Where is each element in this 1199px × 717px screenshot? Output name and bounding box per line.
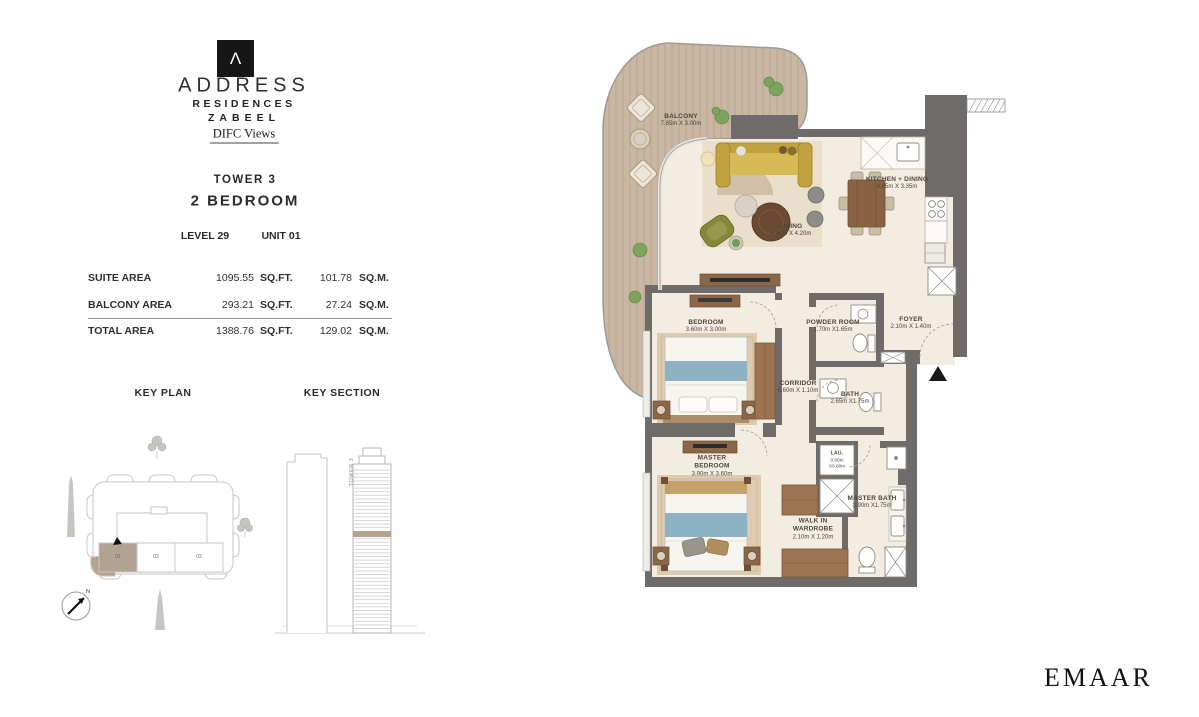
compass-icon xyxy=(62,592,90,620)
master-bed xyxy=(653,477,760,571)
brand-name: ADDRESS xyxy=(178,75,310,98)
floor-lamp xyxy=(701,152,715,166)
keyplan-unit02-label: 02 xyxy=(196,554,202,560)
brand-residences: RESIDENCES xyxy=(192,98,295,110)
side-table xyxy=(735,195,757,217)
area-sqft-value: 1095.55 xyxy=(204,272,254,284)
key-section-tower-label: TOWER 3 xyxy=(349,458,355,486)
area-sqm-value: 101.78 xyxy=(304,272,352,284)
table-row: TOTAL AREA 1388.76 SQ.FT. 129.02 SQ.M. xyxy=(88,325,392,338)
keyplan-unit01-label: 01 xyxy=(115,554,121,560)
key-plan-map xyxy=(55,425,275,635)
room-label-walk-in: WALK IN WARDROBE 2.10m X 1.20m xyxy=(790,518,836,543)
stove xyxy=(925,197,947,221)
plant-icon xyxy=(732,239,740,247)
keyplan-unit03-label: 03 xyxy=(153,554,159,560)
table-divider xyxy=(88,318,392,319)
room-label-master-bedroom: MASTER BEDROOM 3.90m X 3.60m xyxy=(689,455,735,480)
unit-type: 2 BEDROOM xyxy=(191,193,300,210)
area-row-label: SUITE AREA xyxy=(88,272,151,284)
developer-logo: EMAAR xyxy=(1044,663,1153,693)
balcony-table xyxy=(630,129,650,149)
area-sqm-unit: SQ.M. xyxy=(359,325,389,337)
brand-logo-glyph: Λ xyxy=(230,49,241,69)
brand-zabeel: ZABEEL xyxy=(208,112,280,124)
shaft xyxy=(881,352,905,363)
room-label-kitchen: KITCHEN + DINING 4.65m X 3.35m xyxy=(866,176,928,192)
room-label-powder: POWDER ROOM 1.70m X1.65m xyxy=(806,319,859,335)
vent-hatch xyxy=(967,99,1005,112)
floor-plan xyxy=(595,35,1015,595)
unit-number: UNIT 01 xyxy=(261,230,300,242)
room-label-bedroom: BEDROOM 3.60m X 3.00m xyxy=(686,319,727,335)
key-section-title: KEY SECTION xyxy=(304,387,381,399)
tower-title: TOWER 3 xyxy=(214,174,277,186)
area-sqft-unit: SQ.FT. xyxy=(260,299,293,311)
room-label-master-bath: MASTER BATH 3.90m X1.75m xyxy=(847,495,896,511)
views-subtitle: DIFC Views xyxy=(210,127,279,144)
compass-north-label: N xyxy=(86,589,90,595)
area-sqft-unit: SQ.FT. xyxy=(260,272,293,284)
room-label-living: LIVING 4.65m X 4.20m xyxy=(771,223,812,239)
level-label: LEVEL 29 xyxy=(181,230,229,242)
key-plan-title: KEY PLAN xyxy=(135,387,192,399)
area-sqm-value: 129.02 xyxy=(304,325,352,337)
area-sqft-value: 1388.76 xyxy=(204,325,254,337)
area-sqft-unit: SQ.FT. xyxy=(260,325,293,337)
room-label-foyer: FOYER 2.10m X 1.40m xyxy=(891,316,932,332)
table-row: SUITE AREA 1095.55 SQ.FT. 101.78 SQ.M. xyxy=(88,272,392,285)
floorplan-page: Λ ADDRESS RESIDENCES ZABEEL DIFC Views T… xyxy=(0,0,1199,717)
room-label-balcony: BALCONY 7.85m X 3.00m xyxy=(661,113,702,129)
area-sqft-value: 293.21 xyxy=(204,299,254,311)
room-label-laundry: LAU. 0.90m X0.80m xyxy=(829,451,845,470)
brand-logo: Λ xyxy=(217,40,254,77)
bedroom-bed xyxy=(653,337,759,423)
key-section-tower-left xyxy=(287,454,327,633)
pouf xyxy=(808,187,824,203)
shaft xyxy=(928,267,956,295)
area-sqm-unit: SQ.M. xyxy=(359,272,389,284)
area-table: SUITE AREA 1095.55 SQ.FT. 101.78 SQ.M. B… xyxy=(88,265,392,345)
area-row-label: BALCONY AREA xyxy=(88,299,172,311)
area-sqm-value: 27.24 xyxy=(304,299,352,311)
area-row-label: TOTAL AREA xyxy=(88,325,154,337)
shaft xyxy=(885,547,906,577)
area-sqm-unit: SQ.M. xyxy=(359,299,389,311)
table-row: BALCONY AREA 293.21 SQ.FT. 27.24 SQ.M. xyxy=(88,299,392,312)
room-label-bath: BATH 2.65m X1.75m xyxy=(830,391,869,407)
room-label-corridor: CORRIDOR 5.60m X 1.10m xyxy=(778,380,819,396)
key-section-level-highlight xyxy=(353,531,391,537)
